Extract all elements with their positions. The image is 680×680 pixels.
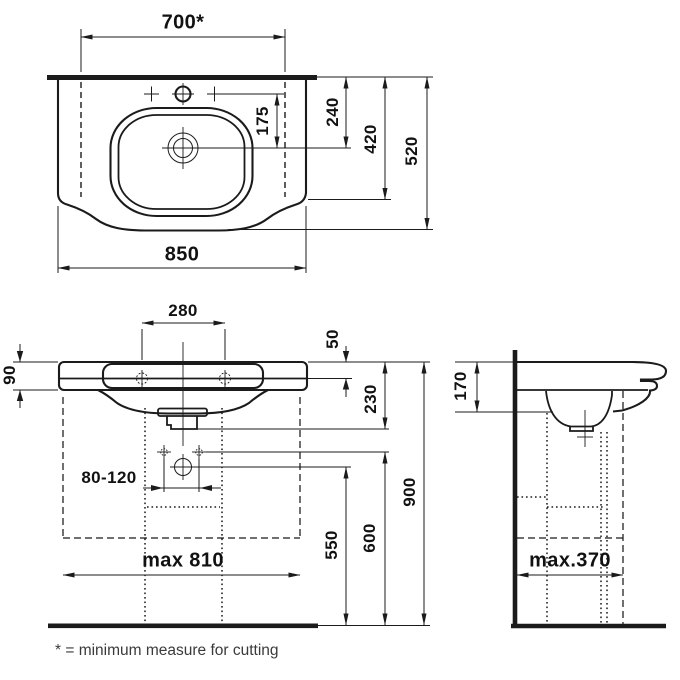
supply-point-right — [192, 445, 206, 459]
dim-700-geometry — [81, 29, 285, 72]
dim-label-520: 520 — [402, 136, 422, 166]
dim-label-550: 550 — [322, 530, 342, 560]
dim-label-max810: max 810 — [142, 550, 224, 573]
waste-outlet — [158, 409, 207, 430]
fixing-bolt-right — [217, 370, 233, 387]
dim-label-600: 600 — [360, 523, 380, 553]
dim-label-280: 280 — [168, 301, 198, 321]
dim-label-240: 240 — [323, 97, 343, 127]
supply-point-left — [157, 445, 171, 459]
dim-50-geometry — [343, 346, 349, 397]
bowl-side-section — [546, 391, 612, 427]
dim-label-170: 170 — [451, 371, 471, 401]
dim-label-850: 850 — [165, 244, 200, 267]
front-view — [13, 323, 430, 628]
basin-back-edge — [47, 75, 317, 80]
dim-label-175: 175 — [253, 106, 273, 136]
fixing-bolt-left — [134, 370, 150, 387]
basin-outline-plan — [58, 80, 306, 231]
dim-280-geometry — [142, 323, 225, 360]
footnote: * = minimum measure for cutting — [55, 642, 279, 660]
floor-front — [48, 624, 318, 629]
bowl-outer-rim — [111, 108, 253, 216]
tap-hole-symbol — [172, 83, 194, 105]
dim-label-90: 90 — [0, 365, 20, 385]
dim-label-80-120: 80-120 — [81, 468, 136, 488]
dim-label-900: 900 — [400, 477, 420, 507]
basin-side-profile — [517, 362, 666, 412]
dim-label-230: 230 — [361, 384, 381, 414]
tap-hole-alt-left — [144, 87, 159, 102]
washbasin-technical-drawing: 700* 850 240 420 520 175 280 90 50 230 8… — [0, 0, 680, 680]
drain-connection — [170, 454, 196, 480]
drain-symbol — [162, 127, 204, 169]
dim-label-max370: max.370 — [529, 550, 611, 573]
side-view — [455, 350, 666, 627]
tap-hole-alt-right — [207, 87, 222, 102]
dim-label-700: 700* — [162, 12, 205, 35]
bowl-inner-rim — [119, 115, 245, 209]
dim-label-420: 420 — [361, 124, 381, 154]
siphon-cover-hidden — [145, 408, 222, 624]
dim-label-50: 50 — [323, 329, 343, 349]
